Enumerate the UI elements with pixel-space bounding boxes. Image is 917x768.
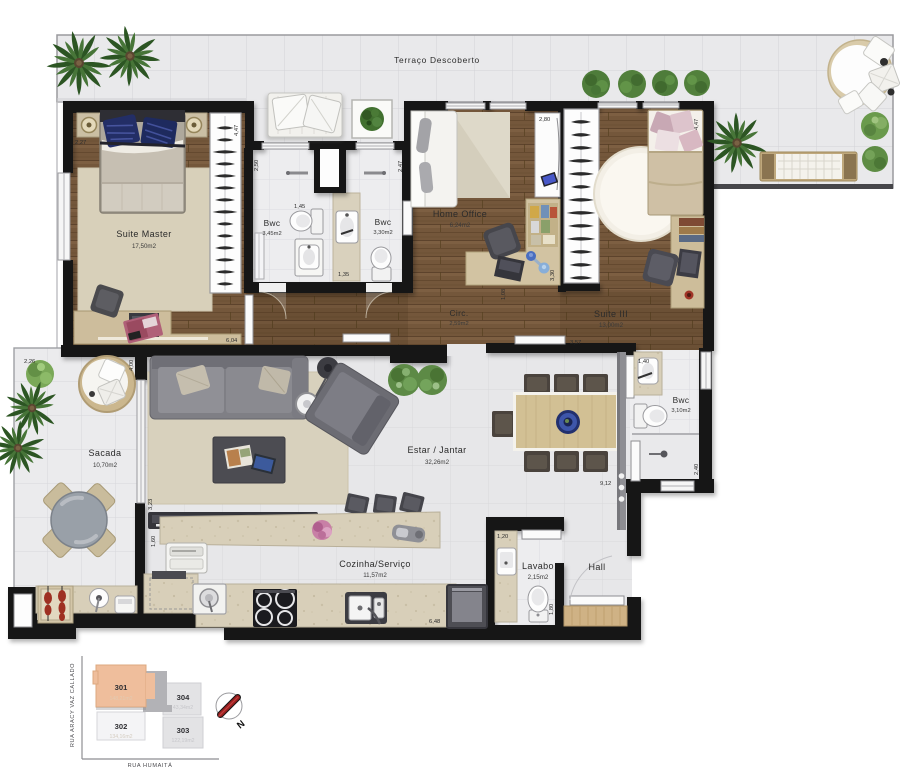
svg-text:Sacada: Sacada <box>89 448 122 458</box>
svg-text:1,45: 1,45 <box>294 204 305 210</box>
svg-text:6,24m2: 6,24m2 <box>450 222 471 229</box>
svg-text:Cozinha/Serviço: Cozinha/Serviço <box>339 559 411 569</box>
svg-text:32,26m2: 32,26m2 <box>425 459 450 466</box>
svg-text:2,59m2: 2,59m2 <box>449 321 468 327</box>
svg-text:301: 301 <box>115 683 128 692</box>
svg-text:3,45m2: 3,45m2 <box>262 231 281 237</box>
svg-text:3,30m2: 3,30m2 <box>373 230 392 236</box>
svg-text:304: 304 <box>177 693 190 702</box>
svg-text:13,00m2: 13,00m2 <box>599 322 624 329</box>
svg-text:122,19m2: 122,19m2 <box>171 738 194 744</box>
svg-text:134,16m2: 134,16m2 <box>109 734 132 740</box>
svg-text:43,34m2: 43,34m2 <box>173 705 193 711</box>
svg-text:Bwc: Bwc <box>264 218 281 228</box>
svg-text:Terraço Descoberto: Terraço Descoberto <box>394 55 480 65</box>
svg-text:RUA HUMAITÁ: RUA HUMAITÁ <box>128 762 173 768</box>
svg-text:303: 303 <box>177 726 190 735</box>
svg-text:2,80: 2,80 <box>539 117 550 123</box>
svg-text:9,12: 9,12 <box>600 481 611 487</box>
svg-text:1,80: 1,80 <box>549 604 555 615</box>
svg-text:2,27: 2,27 <box>75 140 86 146</box>
svg-text:Lavabo: Lavabo <box>522 561 554 571</box>
svg-text:3,10m2: 3,10m2 <box>671 408 690 414</box>
svg-text:1,35: 1,35 <box>338 272 349 278</box>
svg-text:Circ.: Circ. <box>449 308 468 318</box>
svg-text:4,47: 4,47 <box>234 125 240 136</box>
svg-text:Bwc: Bwc <box>673 395 690 405</box>
svg-text:3,57: 3,57 <box>570 340 581 346</box>
svg-text:1,20: 1,20 <box>497 534 508 540</box>
svg-text:RUA ARACY VAZ CALLADO: RUA ARACY VAZ CALLADO <box>70 663 76 747</box>
svg-text:Home Office: Home Office <box>433 209 487 219</box>
svg-text:3,30: 3,30 <box>550 270 556 281</box>
svg-text:1,60: 1,60 <box>151 536 157 547</box>
svg-text:2,15m2: 2,15m2 <box>528 574 549 581</box>
svg-text:302: 302 <box>115 722 128 731</box>
svg-text:6,04: 6,04 <box>226 338 238 344</box>
svg-text:Suite III: Suite III <box>594 309 628 319</box>
svg-text:11,57m2: 11,57m2 <box>363 572 387 579</box>
svg-text:17,50m2: 17,50m2 <box>132 243 157 250</box>
svg-text:4,47: 4,47 <box>694 119 700 130</box>
svg-text:1,08: 1,08 <box>501 289 507 300</box>
svg-text:2,26: 2,26 <box>24 359 35 365</box>
svg-text:2,47: 2,47 <box>398 161 404 172</box>
svg-text:3,23: 3,23 <box>148 499 154 510</box>
svg-text:4,00: 4,00 <box>129 360 135 371</box>
svg-text:10,70m2: 10,70m2 <box>93 462 118 469</box>
svg-text:Hall: Hall <box>588 562 605 572</box>
svg-text:Bwc: Bwc <box>375 217 392 227</box>
svg-text:1,40: 1,40 <box>638 359 649 365</box>
svg-text:148,21m2: 148,21m2 <box>109 696 132 702</box>
svg-text:2,50: 2,50 <box>254 160 260 171</box>
svg-text:6,48: 6,48 <box>429 619 440 625</box>
svg-text:Estar / Jantar: Estar / Jantar <box>407 445 466 455</box>
svg-text:Suite Master: Suite Master <box>116 229 171 239</box>
svg-text:2,40: 2,40 <box>694 464 700 475</box>
